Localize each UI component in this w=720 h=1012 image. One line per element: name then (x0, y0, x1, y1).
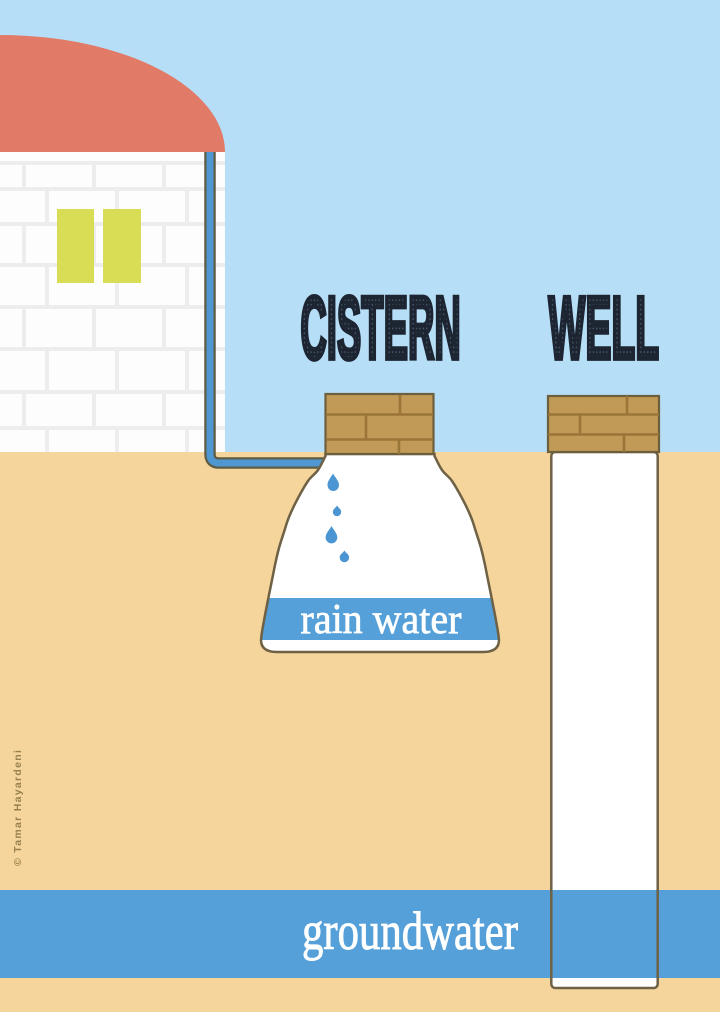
svg-text:rain water: rain water (301, 597, 462, 643)
svg-text:© Tamar Hayardeni: © Tamar Hayardeni (12, 749, 24, 866)
svg-text:groundwater: groundwater (302, 901, 518, 961)
svg-text:CISTERN: CISTERN (300, 280, 461, 379)
svg-text:WELL: WELL (548, 280, 659, 379)
